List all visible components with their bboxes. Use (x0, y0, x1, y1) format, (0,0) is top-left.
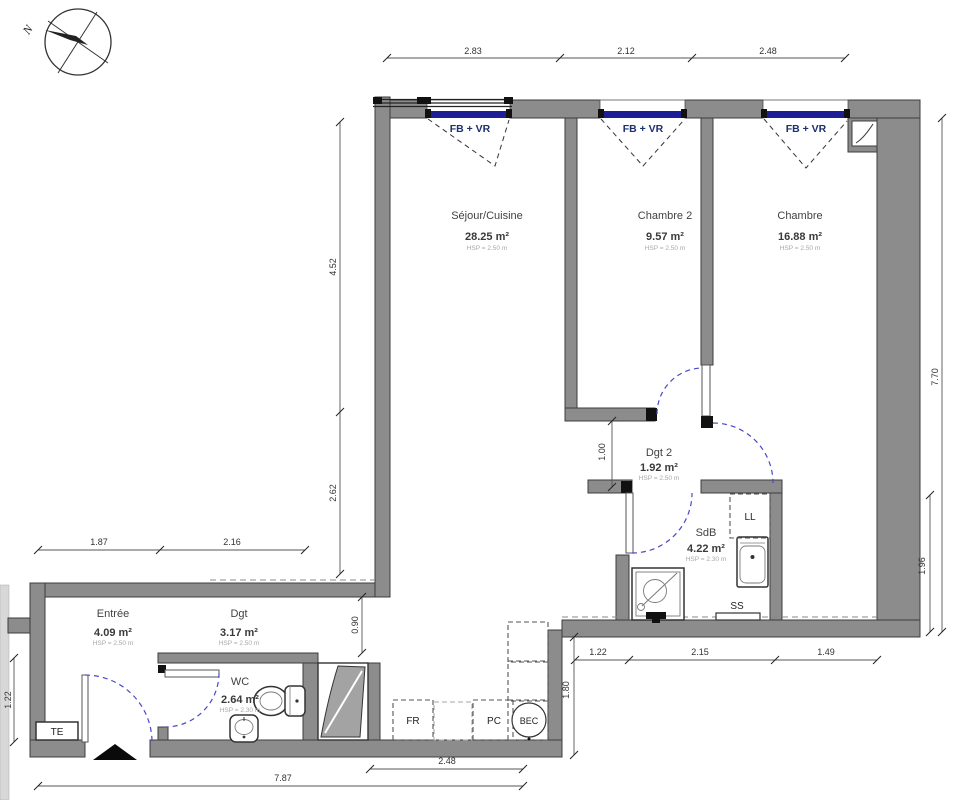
counter-slot (508, 661, 548, 701)
door-pivot (701, 416, 713, 428)
door-leaf-wc (165, 670, 219, 677)
door-leaf-bedroom (702, 365, 710, 416)
dim-label: 7.70 (930, 368, 940, 386)
wc-washbasin-drain (243, 736, 246, 739)
room-label-sejour-cuisine: Séjour/Cuisine 28.25 m² HSP = 2.50 m (451, 210, 523, 252)
wall-stub (8, 618, 30, 633)
toilet-button-icon (295, 699, 298, 702)
wall-segment (848, 100, 920, 118)
window-living: FB + VR (425, 100, 512, 166)
room-hsp: HSP = 2.50 m (219, 640, 260, 647)
room-hsp: HSP = 2.50 m (93, 640, 134, 647)
room-label-entree: Entrée 4.09 m² HSP = 2.50 m (93, 608, 134, 647)
sink-unit-label: BEC (520, 716, 539, 726)
wall-bathroom-right (770, 493, 782, 620)
room-hsp: HSP = 2.50 m (639, 475, 680, 482)
cooktop-label: PC (487, 716, 501, 727)
washing-machine-label: LL (744, 512, 756, 523)
wall-wc-left-bit (158, 727, 168, 740)
dim-label: 7.87 (274, 773, 292, 783)
window-jamb (598, 109, 604, 118)
wall-bottom (30, 740, 85, 757)
room-hsp: HSP = 2.30 m (686, 556, 727, 563)
dim-label: 1.00 (597, 443, 607, 461)
north-label: N (19, 22, 36, 38)
window-bedroom2: FB + VR (598, 100, 687, 166)
wall-entry-top (30, 583, 375, 597)
window-label: FB + VR (450, 123, 491, 135)
window-bedroom: FB + VR (761, 100, 850, 168)
door-swing-wc (165, 673, 219, 727)
room-area: 4.09 m² (94, 627, 132, 639)
door-swing-entrance (85, 675, 152, 742)
room-label-chambre2: Chambre 2 9.57 m² HSP = 2.50 m (638, 210, 692, 252)
dim-label: 2.16 (223, 537, 241, 547)
room-name: Dgt 2 (646, 447, 672, 459)
dim-label: 2.12 (617, 46, 635, 56)
electrical-board-label: TE (51, 727, 64, 738)
room-hsp: HSP = 2.30 m (220, 707, 261, 714)
dim-label: 1.49 (817, 647, 835, 657)
dim-label: 2.83 (464, 46, 482, 56)
wall-shaft-right (368, 663, 380, 740)
sink-unit-drain (528, 738, 531, 741)
room-area: 16.88 m² (778, 231, 822, 243)
room-name: WC (231, 676, 249, 688)
window-jamb (425, 109, 431, 118)
floor-plan-drawing: N (0, 0, 953, 800)
counter-slot (508, 622, 548, 662)
dim-label: 1.80 (561, 681, 571, 699)
wall-segment (510, 100, 600, 118)
door-pivot (646, 408, 657, 421)
wall-living-bedroom2 (565, 118, 577, 408)
room-hsp: HSP = 2.50 m (780, 245, 821, 252)
doors (82, 365, 773, 742)
room-label-wc: WC 2.64 m² HSP = 2.30 m (220, 676, 261, 714)
wall-segment (685, 100, 763, 118)
room-name: SdB (696, 527, 717, 539)
wall-bottom-right-wing (562, 620, 920, 637)
washbasin-drain-icon (751, 555, 755, 559)
room-label-dgt2: Dgt 2 1.92 m² HSP = 2.50 m (639, 447, 680, 482)
dim-label: 1.22 (3, 691, 13, 709)
room-name: Chambre (777, 210, 822, 222)
dim-label: 2.62 (328, 484, 338, 502)
window-glass (763, 111, 848, 118)
dim-label: 1.87 (90, 537, 108, 547)
room-name: Séjour/Cuisine (451, 210, 523, 222)
room-label-sdb: SdB 4.22 m² HSP = 2.30 m (686, 527, 727, 563)
bay-stop (373, 97, 382, 104)
room-name: Entrée (97, 608, 129, 620)
room-label-chambre: Chambre 16.88 m² HSP = 2.50 m (777, 210, 822, 252)
wall-bottom (150, 740, 562, 757)
window-frame (600, 100, 685, 112)
window-frame (763, 100, 848, 112)
window-jamb (506, 109, 512, 118)
kitchen-slot (434, 702, 472, 740)
window-jamb (681, 109, 687, 118)
window-glass (427, 111, 510, 118)
bay-stop (417, 97, 431, 104)
dim-label: 2.48 (759, 46, 777, 56)
room-label-dgt: Dgt 3.17 m² HSP = 2.50 m (219, 608, 260, 647)
window-jamb (761, 109, 767, 118)
wall-bedroom2-bedroom (701, 118, 713, 365)
dim-label: 2.48 (438, 756, 456, 766)
dim-label: 1.96 (917, 557, 927, 575)
walls (8, 97, 920, 757)
door-leaf-entrance (82, 675, 88, 742)
compass: N (19, 9, 111, 75)
window-jamb (844, 109, 850, 118)
room-name: Chambre 2 (638, 210, 692, 222)
dim-label: 2.15 (691, 647, 709, 657)
door-pivot (621, 481, 632, 493)
floor-plan-page: N (0, 0, 953, 800)
room-area: 3.17 m² (220, 627, 258, 639)
dim-label: 0.90 (350, 616, 360, 634)
room-area: 9.57 m² (646, 231, 684, 243)
north-needle-icon (45, 30, 88, 45)
towel-dryer-label: SS (730, 601, 744, 612)
wall-bathroom-top (701, 480, 782, 493)
shower-mixer-icon (652, 619, 660, 623)
wall-bedroom2-bottom (565, 408, 655, 421)
shower-mixer-icon (646, 612, 666, 619)
door-swing-bedroom2 (657, 368, 703, 414)
door-swing-bedroom (713, 423, 773, 483)
dimensions: 2.83 2.12 2.48 4.52 2.62 1.87 2.16 1.22 … (3, 46, 946, 790)
door-swing-bathroom (632, 493, 692, 553)
room-hsp: HSP = 2.50 m (467, 245, 508, 252)
entrance-marker-icon (93, 744, 137, 760)
room-area: 28.25 m² (465, 231, 509, 243)
wall-left-living (375, 97, 390, 597)
window-label: FB + VR (786, 123, 827, 135)
fridge-label: FR (406, 716, 419, 727)
room-area: 4.22 m² (687, 543, 725, 555)
towel-dryer (716, 613, 760, 620)
wall-bathroom-left (616, 555, 629, 620)
wall-kitchen-right (548, 630, 562, 740)
bathroom-washbasin (737, 537, 768, 587)
duct-niche (852, 121, 877, 146)
room-area: 2.64 m² (221, 694, 259, 706)
bay-stop (504, 97, 513, 104)
room-hsp: HSP = 2.50 m (645, 245, 686, 252)
window-label: FB + VR (623, 123, 664, 135)
window-glass (600, 111, 685, 118)
wall-wc-top (158, 653, 318, 663)
room-area: 1.92 m² (640, 462, 678, 474)
room-name: Dgt (230, 608, 247, 620)
compass-cross-line (58, 12, 97, 73)
dim-label: 1.22 (589, 647, 607, 657)
dim-label: 4.52 (328, 258, 338, 276)
door-leaf-bathroom (626, 493, 633, 553)
wall-right-exterior (877, 118, 920, 637)
toilet-tank (285, 686, 305, 716)
